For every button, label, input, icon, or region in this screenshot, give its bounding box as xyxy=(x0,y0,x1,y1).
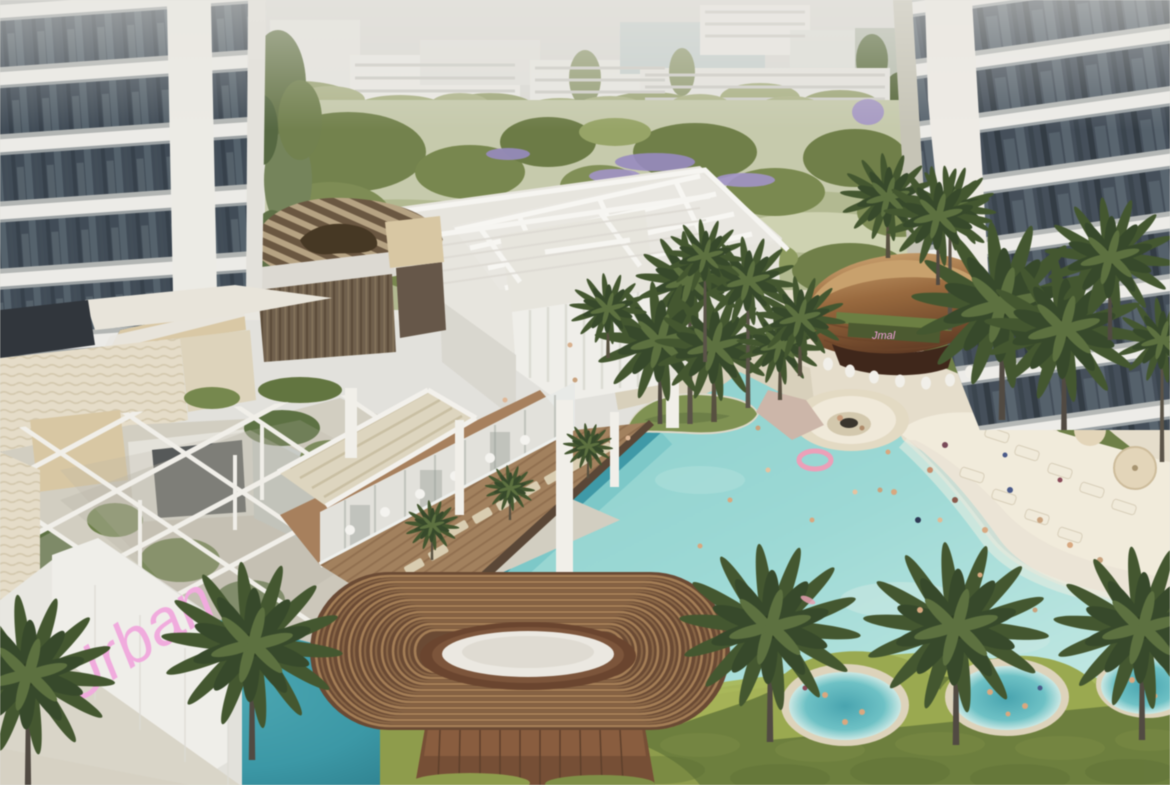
svg-text:Jmal: Jmal xyxy=(871,330,896,342)
